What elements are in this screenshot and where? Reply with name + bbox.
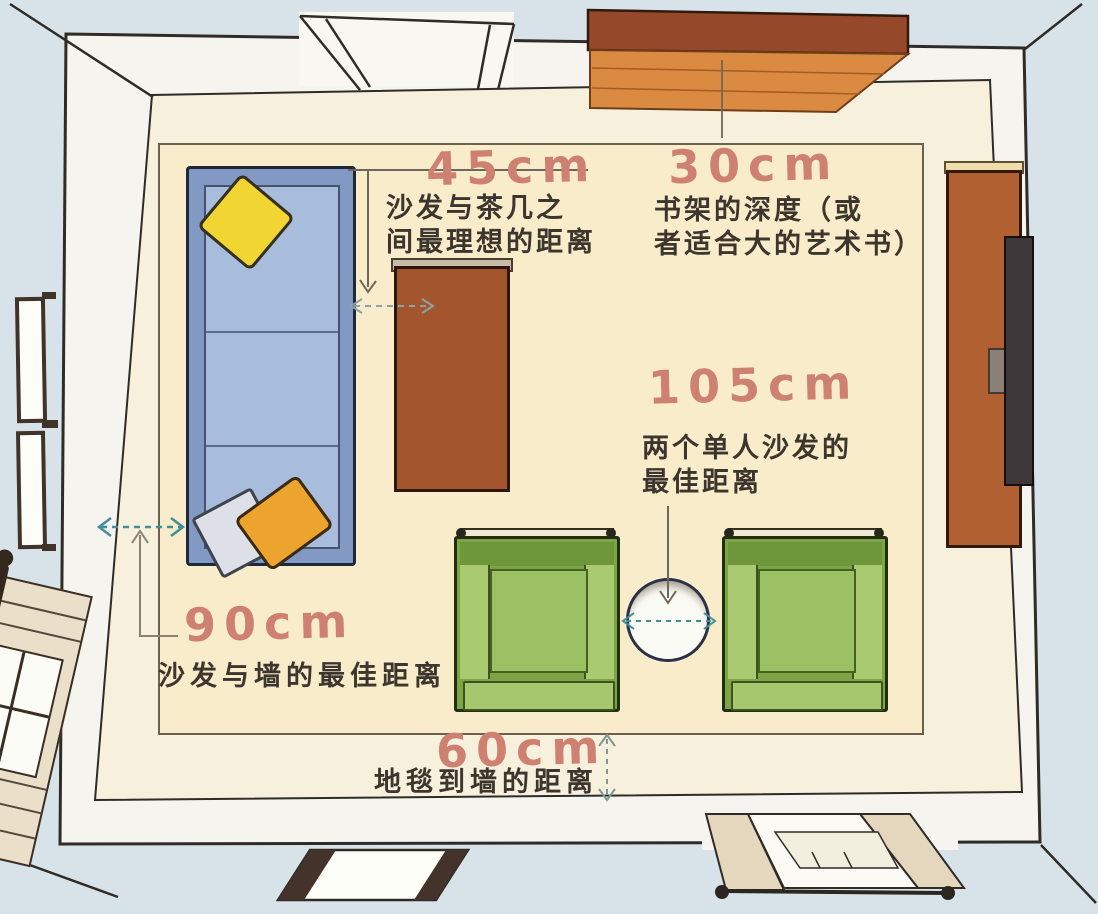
dimension-30cm: 30cm — [667, 136, 840, 194]
armchair-right — [722, 536, 888, 712]
round-side-table — [626, 578, 710, 662]
chair-back — [460, 542, 614, 566]
chair-arm — [852, 565, 882, 679]
french-window-slat — [0, 792, 41, 814]
chair-seat — [758, 569, 856, 673]
chair-seat — [490, 569, 588, 673]
chair-front-cushion — [463, 681, 615, 711]
chair-arm — [728, 565, 758, 679]
sofa-seam — [206, 331, 338, 333]
label-sofa-coffee-table: 沙发与茶几之 间最理想的距离 — [386, 192, 596, 260]
floor-plan-canvas: 45cm 沙发与茶几之 间最理想的距离 30cm 书架的深度（或 者适合大的艺术… — [0, 0, 1098, 914]
dimension-45cm: 45cm — [425, 138, 598, 196]
french-window-slat — [0, 599, 85, 621]
chair-front-cushion — [731, 681, 883, 711]
window-sill — [42, 420, 58, 428]
label-bookshelf-depth: 书架的深度（或 者适合大的艺术书） — [654, 194, 924, 262]
left-window-upper — [15, 297, 47, 424]
french-window-slat — [0, 818, 35, 840]
bottom-window — [278, 850, 468, 900]
tv — [1004, 236, 1034, 486]
armchair-left — [454, 536, 620, 712]
sofa — [186, 166, 356, 566]
sofa-seam — [206, 445, 338, 447]
label-sofa-wall: 沙发与墙的最佳距离 — [158, 660, 446, 694]
label-armchair-gap: 两个单人沙发的 最佳距离 — [642, 432, 852, 500]
dimension-90cm: 90cm — [183, 594, 356, 652]
chair-arm — [460, 565, 490, 679]
chair-arm — [584, 565, 614, 679]
chair-back — [728, 542, 882, 566]
french-window-glass — [0, 644, 64, 778]
window-sill — [42, 292, 56, 299]
french-window-slat — [0, 621, 81, 643]
coffee-table — [394, 266, 510, 492]
left-window-lower — [16, 431, 47, 549]
dimension-105cm: 105cm — [647, 355, 860, 415]
label-carpet-wall: 地毯到墙的距离 — [374, 766, 598, 800]
window-sill — [42, 544, 56, 551]
